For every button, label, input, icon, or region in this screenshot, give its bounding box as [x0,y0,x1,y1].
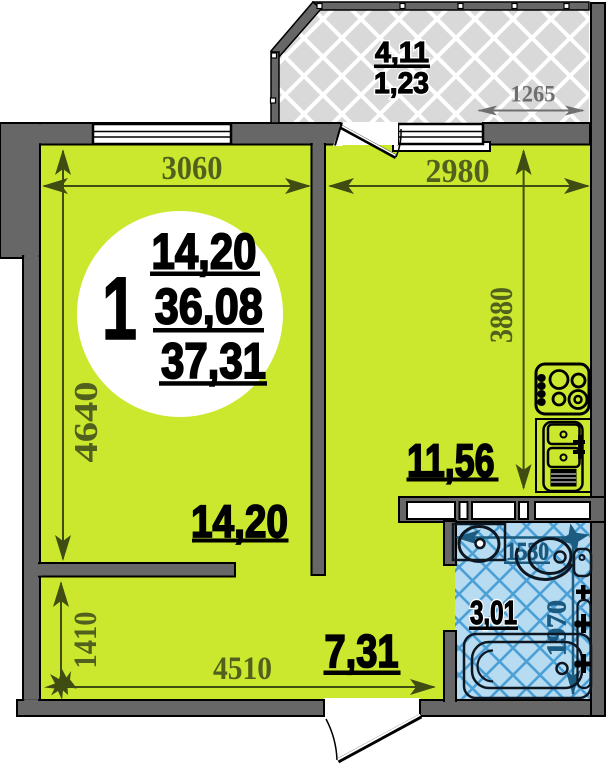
svg-text:1530: 1530 [506,539,549,566]
svg-text:14,20: 14,20 [152,224,257,280]
svg-text:36,08: 36,08 [155,278,263,334]
svg-text:7,31: 7,31 [325,625,399,677]
svg-text:4510: 4510 [213,651,272,687]
svg-text:2980: 2980 [426,153,490,190]
svg-text:3,01: 3,01 [470,594,517,631]
svg-text:3880: 3880 [484,287,520,343]
svg-text:1265: 1265 [511,82,556,107]
svg-text:1: 1 [102,258,137,358]
svg-text:3060: 3060 [162,150,223,187]
svg-text:1,23: 1,23 [374,67,429,100]
svg-text:37,31: 37,31 [161,333,266,389]
svg-text:1970: 1970 [542,600,572,656]
svg-text:4,11: 4,11 [375,37,429,69]
svg-text:1410: 1410 [68,612,104,669]
svg-text:4640: 4640 [68,382,105,463]
